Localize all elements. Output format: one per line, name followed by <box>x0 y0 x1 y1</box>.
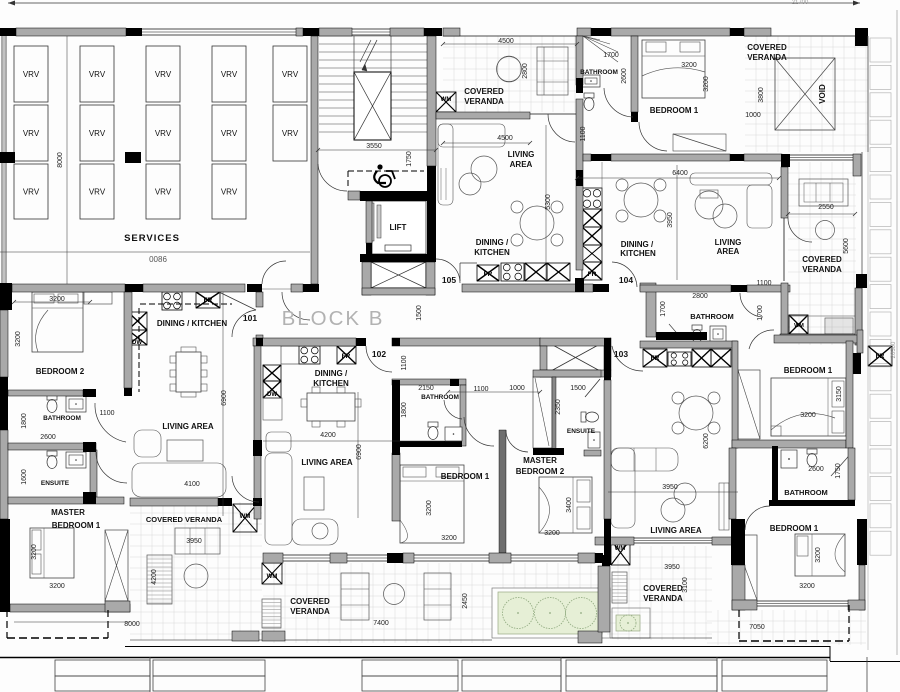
svg-text:VRV: VRV <box>221 188 238 197</box>
svg-text:1000: 1000 <box>509 385 525 392</box>
svg-text:4200: 4200 <box>151 569 158 585</box>
svg-text:2350: 2350 <box>555 399 562 415</box>
svg-text:3100: 3100 <box>682 577 689 593</box>
svg-text:104: 104 <box>619 275 633 285</box>
svg-text:2800: 2800 <box>692 293 708 300</box>
svg-text:1700: 1700 <box>660 301 667 317</box>
svg-text:3550: 3550 <box>366 143 382 150</box>
svg-text:COVERED: COVERED <box>464 87 504 96</box>
svg-text:BATHROOM: BATHROOM <box>690 312 734 321</box>
svg-text:2450: 2450 <box>462 593 469 609</box>
svg-text:1800: 1800 <box>401 402 408 418</box>
svg-text:BEDROOM 2: BEDROOM 2 <box>36 367 85 376</box>
svg-text:DW: DW <box>132 340 142 346</box>
svg-text:3150: 3150 <box>836 386 843 402</box>
svg-text:VRV: VRV <box>89 188 106 197</box>
svg-text:VRV: VRV <box>155 188 172 197</box>
svg-text:VRV: VRV <box>89 70 106 79</box>
svg-text:20300: 20300 <box>891 341 897 358</box>
svg-text:3200: 3200 <box>815 547 822 563</box>
svg-text:1500: 1500 <box>416 305 423 321</box>
svg-text:3950: 3950 <box>662 484 678 491</box>
svg-text:8000: 8000 <box>57 152 64 168</box>
svg-text:VRV: VRV <box>23 188 40 197</box>
svg-text:21700: 21700 <box>792 0 809 6</box>
svg-text:BATHROOM: BATHROOM <box>421 394 459 401</box>
svg-text:4200: 4200 <box>320 432 336 439</box>
svg-text:LIVING: LIVING <box>508 150 535 159</box>
svg-text:BEDROOM 1: BEDROOM 1 <box>650 106 699 115</box>
svg-text:VRV: VRV <box>155 70 172 79</box>
svg-text:VERANDA: VERANDA <box>643 594 683 603</box>
svg-text:6900: 6900 <box>356 444 363 460</box>
svg-text:MASTER: MASTER <box>51 508 85 517</box>
svg-text:BEDROOM 1: BEDROOM 1 <box>770 524 819 533</box>
svg-text:DINING /: DINING / <box>621 240 654 249</box>
svg-text:COVERED: COVERED <box>802 255 842 264</box>
svg-text:COVERED VERANDA: COVERED VERANDA <box>146 515 223 524</box>
svg-text:AREA: AREA <box>717 247 740 256</box>
svg-text:DINING /: DINING / <box>476 238 509 247</box>
svg-text:3800: 3800 <box>758 87 765 103</box>
svg-text:3950: 3950 <box>667 212 674 228</box>
svg-text:1100: 1100 <box>756 280 771 287</box>
svg-text:101: 101 <box>243 313 257 323</box>
svg-text:FR: FR <box>484 271 493 278</box>
svg-text:3200: 3200 <box>544 530 560 537</box>
svg-text:BATHROOM: BATHROOM <box>784 488 828 497</box>
svg-text:1100: 1100 <box>580 126 587 141</box>
svg-text:1750: 1750 <box>406 151 413 167</box>
svg-text:FR: FR <box>588 271 597 278</box>
svg-text:FR: FR <box>876 353 885 360</box>
svg-text:2600: 2600 <box>621 68 628 84</box>
svg-text:VRV: VRV <box>23 70 40 79</box>
svg-text:COVERED: COVERED <box>747 43 787 52</box>
svg-text:DINING /: DINING / <box>315 369 348 378</box>
svg-text:WM: WM <box>441 97 452 103</box>
svg-text:BEDROOM 1: BEDROOM 1 <box>52 521 101 530</box>
svg-text:103: 103 <box>614 349 628 359</box>
svg-text:1600: 1600 <box>21 469 28 485</box>
svg-text:1100: 1100 <box>99 410 114 417</box>
svg-text:AREA: AREA <box>510 160 533 169</box>
svg-text:3200: 3200 <box>681 62 697 69</box>
svg-text:WM: WM <box>794 323 804 329</box>
svg-text:3200: 3200 <box>703 76 710 92</box>
svg-text:BEDROOM 1: BEDROOM 1 <box>441 472 490 481</box>
svg-text:KITCHEN: KITCHEN <box>620 249 656 258</box>
svg-text:BLOCK B: BLOCK B <box>282 307 385 330</box>
svg-text:2150: 2150 <box>418 385 434 392</box>
svg-text:ENSUITE: ENSUITE <box>567 428 596 435</box>
svg-text:8000: 8000 <box>124 621 140 628</box>
svg-text:VRV: VRV <box>282 129 299 138</box>
svg-text:LIVING AREA: LIVING AREA <box>162 422 213 431</box>
svg-text:VRV: VRV <box>89 129 106 138</box>
svg-text:1100: 1100 <box>401 355 408 370</box>
svg-text:LIVING: LIVING <box>715 238 742 247</box>
svg-text:3200: 3200 <box>49 296 65 303</box>
svg-text:3400: 3400 <box>566 497 573 513</box>
svg-text:7400: 7400 <box>373 620 389 627</box>
svg-text:VRV: VRV <box>221 129 238 138</box>
svg-text:5600: 5600 <box>843 238 850 254</box>
svg-text:VRV: VRV <box>221 70 238 79</box>
svg-text:6400: 6400 <box>672 170 688 177</box>
svg-text:1100: 1100 <box>473 386 488 393</box>
svg-text:1700: 1700 <box>603 52 619 59</box>
svg-text:LIVING AREA: LIVING AREA <box>650 526 701 535</box>
svg-text:KITCHEN: KITCHEN <box>474 248 510 257</box>
svg-text:0086: 0086 <box>149 255 167 264</box>
svg-text:WM: WM <box>267 574 278 580</box>
svg-text:1700: 1700 <box>757 305 764 321</box>
svg-text:VERANDA: VERANDA <box>464 97 504 106</box>
svg-text:VOID: VOID <box>818 84 827 104</box>
svg-text:1800: 1800 <box>21 413 28 429</box>
svg-text:3950: 3950 <box>186 538 202 545</box>
svg-text:6900: 6900 <box>221 390 228 406</box>
svg-text:FR: FR <box>204 297 213 304</box>
svg-text:102: 102 <box>372 349 386 359</box>
svg-text:VRV: VRV <box>282 70 299 79</box>
svg-text:4100: 4100 <box>184 481 200 488</box>
svg-text:DW: DW <box>267 392 277 398</box>
svg-text:3200: 3200 <box>441 535 457 542</box>
svg-text:VERANDA: VERANDA <box>802 265 842 274</box>
svg-text:ENSUITE: ENSUITE <box>41 480 70 487</box>
svg-text:BATHROOM: BATHROOM <box>43 415 81 422</box>
svg-text:6200: 6200 <box>703 433 710 449</box>
svg-text:2550: 2550 <box>818 204 834 211</box>
svg-text:1500: 1500 <box>570 385 586 392</box>
svg-text:3200: 3200 <box>31 544 38 560</box>
svg-text:4500: 4500 <box>498 38 514 45</box>
svg-text:LIFT: LIFT <box>390 223 407 232</box>
svg-text:2600: 2600 <box>808 466 824 473</box>
svg-text:7050: 7050 <box>749 624 765 631</box>
svg-text:3200: 3200 <box>799 583 815 590</box>
svg-text:BATHROOM: BATHROOM <box>580 69 618 76</box>
svg-text:SERVICES: SERVICES <box>124 233 180 244</box>
svg-text:3200: 3200 <box>15 331 22 347</box>
svg-text:1750: 1750 <box>835 463 842 479</box>
svg-text:105: 105 <box>442 275 456 285</box>
svg-text:3200: 3200 <box>426 500 433 516</box>
svg-text:LIVING AREA: LIVING AREA <box>301 458 352 467</box>
svg-text:KITCHEN: KITCHEN <box>313 379 349 388</box>
svg-text:VRV: VRV <box>155 129 172 138</box>
svg-text:VRV: VRV <box>23 129 40 138</box>
svg-text:3950: 3950 <box>664 564 680 571</box>
svg-text:BEDROOM 2: BEDROOM 2 <box>516 467 565 476</box>
svg-text:3200: 3200 <box>800 412 816 419</box>
svg-text:FR: FR <box>651 355 660 362</box>
svg-text:3200: 3200 <box>49 583 65 590</box>
svg-text:VERANDA: VERANDA <box>747 53 787 62</box>
svg-text:2600: 2600 <box>40 434 56 441</box>
svg-text:VERANDA: VERANDA <box>290 607 330 616</box>
svg-text:2800: 2800 <box>522 63 529 79</box>
svg-text:WM: WM <box>615 546 626 552</box>
svg-text:DINING / KITCHEN: DINING / KITCHEN <box>157 319 227 328</box>
svg-text:MASTER: MASTER <box>523 456 557 465</box>
svg-text:5300: 5300 <box>545 194 552 210</box>
svg-text:1000: 1000 <box>745 112 761 119</box>
svg-text:WM: WM <box>240 514 251 520</box>
svg-text:FR: FR <box>342 353 351 360</box>
svg-text:4500: 4500 <box>497 135 513 142</box>
svg-text:BEDROOM 1: BEDROOM 1 <box>784 366 833 375</box>
svg-text:COVERED: COVERED <box>290 597 330 606</box>
svg-text:COVERED: COVERED <box>643 584 683 593</box>
